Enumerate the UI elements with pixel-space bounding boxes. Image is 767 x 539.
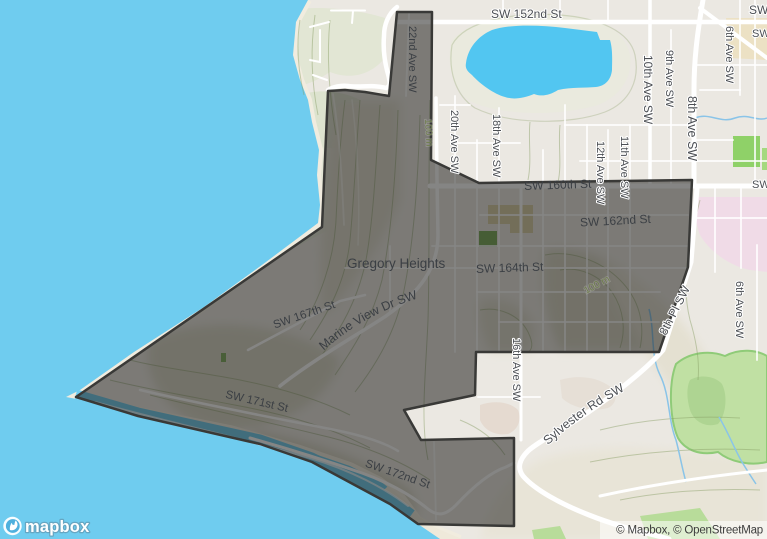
svg-text:SW 164th St: SW 164th St — [476, 260, 544, 276]
svg-text:SW 160th St: SW 160th St — [524, 177, 592, 193]
svg-text:6th Ave SW: 6th Ave SW — [733, 281, 745, 339]
svg-text:SW: SW — [749, 3, 767, 17]
svg-text:12th Ave SW: 12th Ave SW — [594, 141, 606, 205]
svg-text:20th Ave SW: 20th Ave SW — [448, 110, 460, 174]
svg-text:10th Ave SW: 10th Ave SW — [641, 55, 655, 125]
svg-text:100 m: 100 m — [422, 119, 434, 147]
svg-text:SW 152nd St: SW 152nd St — [491, 7, 562, 21]
svg-text:22nd Ave SW: 22nd Ave SW — [406, 26, 418, 93]
svg-text:8th Ave SW: 8th Ave SW — [685, 96, 699, 161]
svg-text:11th Ave SW: 11th Ave SW — [618, 136, 630, 199]
svg-text:© Mapbox, © OpenStreetMap: © Mapbox, © OpenStreetMap — [616, 525, 763, 537]
svg-text:6th Ave SW: 6th Ave SW — [723, 26, 735, 84]
svg-text:SW: SW — [752, 179, 767, 191]
svg-text:Gregory Heights: Gregory Heights — [347, 256, 446, 271]
svg-text:mapbox: mapbox — [25, 518, 90, 536]
svg-text:16th Ave SW: 16th Ave SW — [510, 338, 522, 402]
svg-text:SW: SW — [752, 28, 767, 40]
svg-text:9th Ave SW: 9th Ave SW — [663, 50, 675, 108]
svg-text:18th Ave SW: 18th Ave SW — [490, 114, 502, 178]
